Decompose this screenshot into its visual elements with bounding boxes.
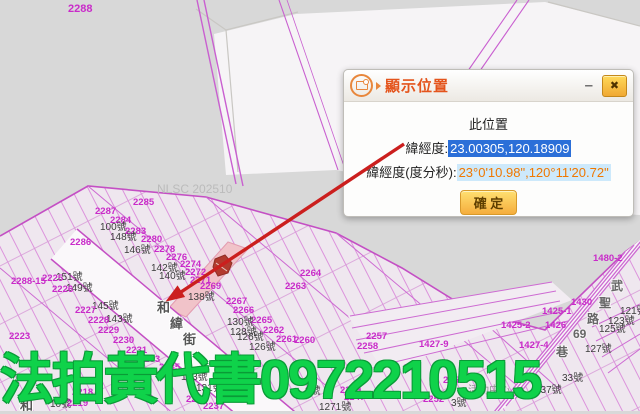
dms-value: 23°0'10.98",120°11'20.72" [457, 164, 611, 181]
map-label: 1425-2 [501, 320, 531, 331]
map-label: 活動中心 [468, 383, 510, 396]
map-label: 133號 [181, 370, 208, 383]
show-position-dialog: 顯示位置 – ✖ 此位置 緯經度:23.00305,120.18909 緯經度(… [343, 69, 634, 217]
dialog-body: 此位置 緯經度:23.00305,120.18909 緯經度(度分秒):23°0… [344, 102, 633, 215]
map-label: 148號 [110, 230, 137, 243]
dms-label: 緯經度(度分秒): [366, 165, 456, 180]
map-label: 146號 [124, 243, 151, 256]
map-label: 131號 [196, 381, 223, 394]
map-label: 2258 [357, 341, 378, 352]
map-label: 2219 [67, 398, 88, 409]
dialog-title: 顯示位置 [385, 75, 449, 96]
map-label: 2225 [42, 273, 64, 284]
map-label: 1427-9 [419, 339, 449, 350]
section-title: 此位置 [344, 114, 633, 133]
map-label: 138號 [188, 290, 215, 303]
map-label: 2286 [70, 237, 91, 248]
latlng-label: 緯經度: [406, 141, 449, 156]
dialog-titlebar[interactable]: 顯示位置 – ✖ [344, 70, 633, 102]
map-label: 3號 [451, 396, 467, 409]
map-label: 1426 [545, 320, 566, 331]
close-button[interactable]: ✖ [602, 75, 627, 97]
map-label: 125號 [599, 322, 626, 335]
map-label: 2226 [52, 284, 73, 295]
map-label: 和 [20, 398, 33, 411]
map-app-screen: { "dialog": { "title": "顯示位置", "minimize… [0, 0, 640, 411]
map-label: 2235 [159, 362, 181, 373]
map-label: 140號 [159, 269, 186, 282]
map-label: 2263 [285, 281, 306, 292]
map-label: 127號 [585, 342, 612, 355]
map-label: 1271號 [319, 400, 351, 411]
map-label: 路 [587, 311, 600, 326]
map-label: 街 [182, 332, 196, 347]
map-label: 2223 [9, 331, 30, 342]
map-label: 緯 [170, 316, 183, 331]
map-label: 69 [573, 327, 587, 341]
map-label: NLSC 202510 [157, 182, 233, 196]
map-label: 2237 [203, 401, 224, 411]
minimize-button[interactable]: – [585, 78, 593, 93]
map-label: 2269 [200, 281, 221, 292]
map-label: 1480-2 [593, 253, 623, 264]
map-label: 2252 [423, 394, 444, 405]
map-label: 2264 [300, 268, 322, 279]
map-label: 2285 [133, 197, 155, 208]
map-label: 聖 [599, 296, 611, 310]
map-label: 巷 [555, 344, 569, 359]
map-label: 2260 [294, 335, 315, 346]
map-label: 2218 [72, 387, 93, 398]
map-label: 1425-1 [542, 306, 572, 317]
latlng-value: 23.00305,120.18909 [448, 140, 571, 157]
map-label: 2233 [139, 354, 160, 365]
map-label: 33號 [562, 371, 583, 384]
map-label: 143號 [106, 312, 133, 325]
map-label: 126號 [249, 340, 276, 353]
map-label: 2259 [443, 375, 464, 386]
position-icon [350, 74, 373, 97]
arrow-right-icon [376, 82, 381, 90]
map-label: 2288 [68, 3, 92, 15]
map-label: 1427-4 [519, 340, 549, 351]
map-label: 武 [611, 278, 623, 293]
confirm-button[interactable]: 確 定 [460, 190, 518, 215]
map-label: 137號 [535, 383, 562, 396]
map-label: 1430 [571, 297, 592, 308]
map-label: 和 [157, 300, 170, 315]
map-label: 8號 [305, 384, 321, 397]
